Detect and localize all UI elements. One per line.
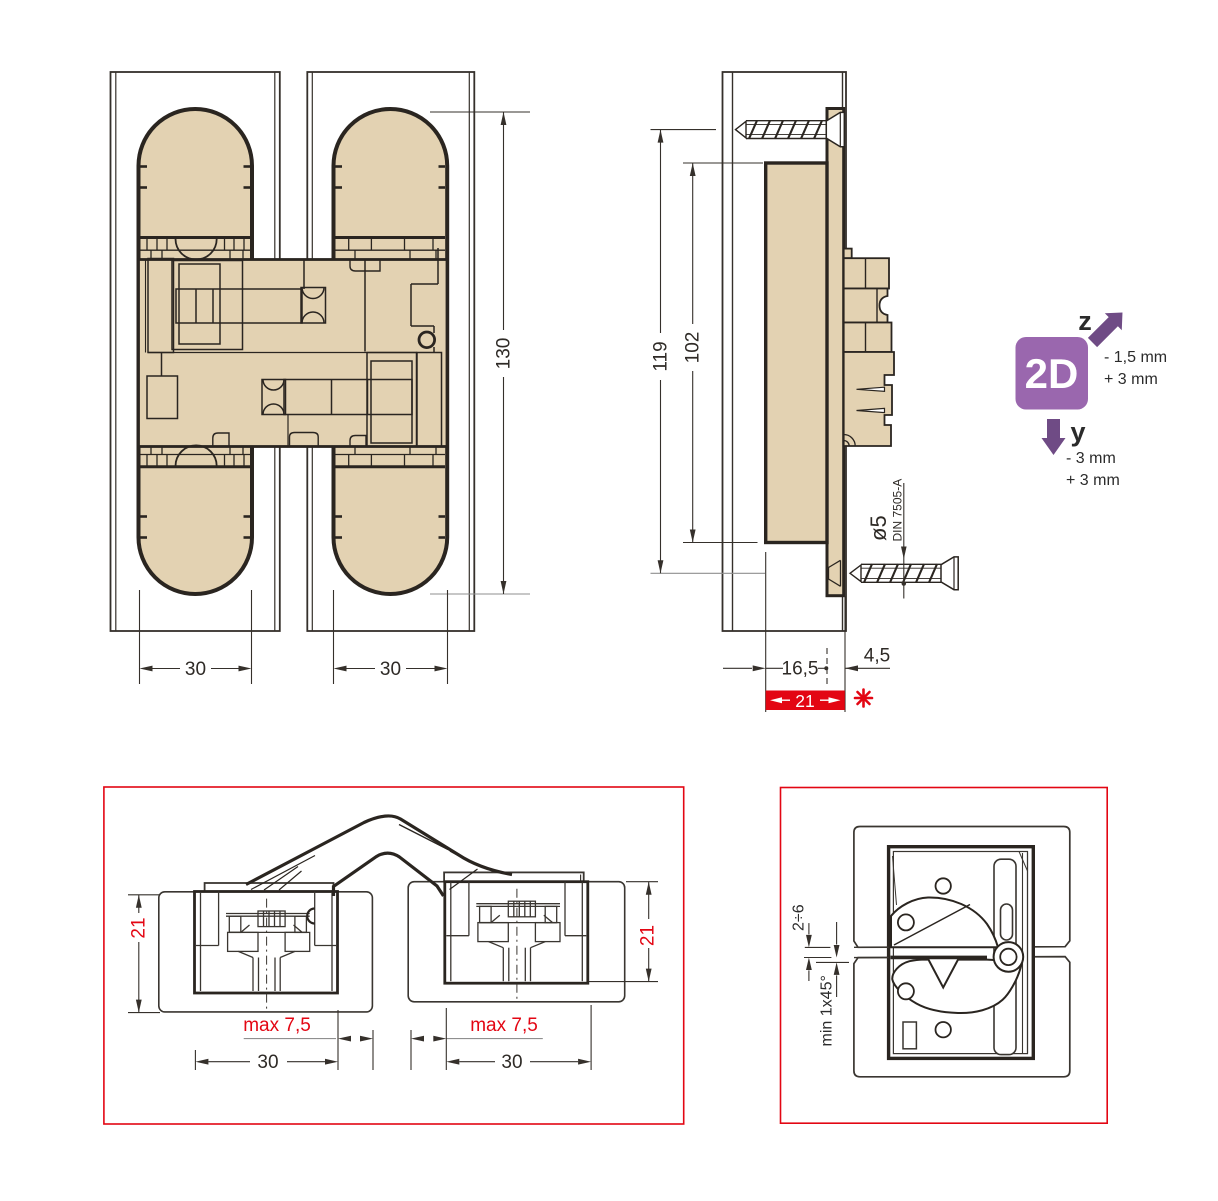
svg-text:min 1x45°: min 1x45°	[818, 975, 835, 1046]
svg-text:z: z	[1078, 306, 1092, 336]
svg-text:- 1,5 mm: - 1,5 mm	[1104, 349, 1167, 366]
svg-text:+ 3 mm: + 3 mm	[1066, 472, 1120, 489]
svg-text:4,5: 4,5	[864, 646, 890, 667]
svg-text:DIN 7505-A: DIN 7505-A	[891, 479, 905, 542]
svg-text:21: 21	[795, 691, 814, 711]
svg-text:119: 119	[651, 341, 672, 371]
svg-text:30: 30	[380, 659, 401, 680]
svg-text:30: 30	[501, 1052, 522, 1073]
svg-text:max 7,5: max 7,5	[243, 1015, 311, 1036]
svg-text:2÷6: 2÷6	[791, 904, 808, 931]
svg-text:+ 3 mm: + 3 mm	[1104, 371, 1158, 388]
svg-text:- 3 mm: - 3 mm	[1066, 450, 1116, 467]
svg-text:30: 30	[185, 659, 206, 680]
svg-text:2D: 2D	[1025, 350, 1079, 397]
svg-text:16,5: 16,5	[782, 659, 819, 680]
svg-text:21: 21	[128, 917, 149, 938]
svg-text:102: 102	[683, 332, 704, 364]
svg-text:130: 130	[494, 338, 515, 370]
svg-text:ø5: ø5	[866, 515, 891, 541]
svg-text:30: 30	[257, 1052, 278, 1073]
svg-text:y: y	[1070, 417, 1085, 447]
svg-text:max 7,5: max 7,5	[470, 1015, 538, 1036]
svg-text:21: 21	[638, 925, 659, 946]
